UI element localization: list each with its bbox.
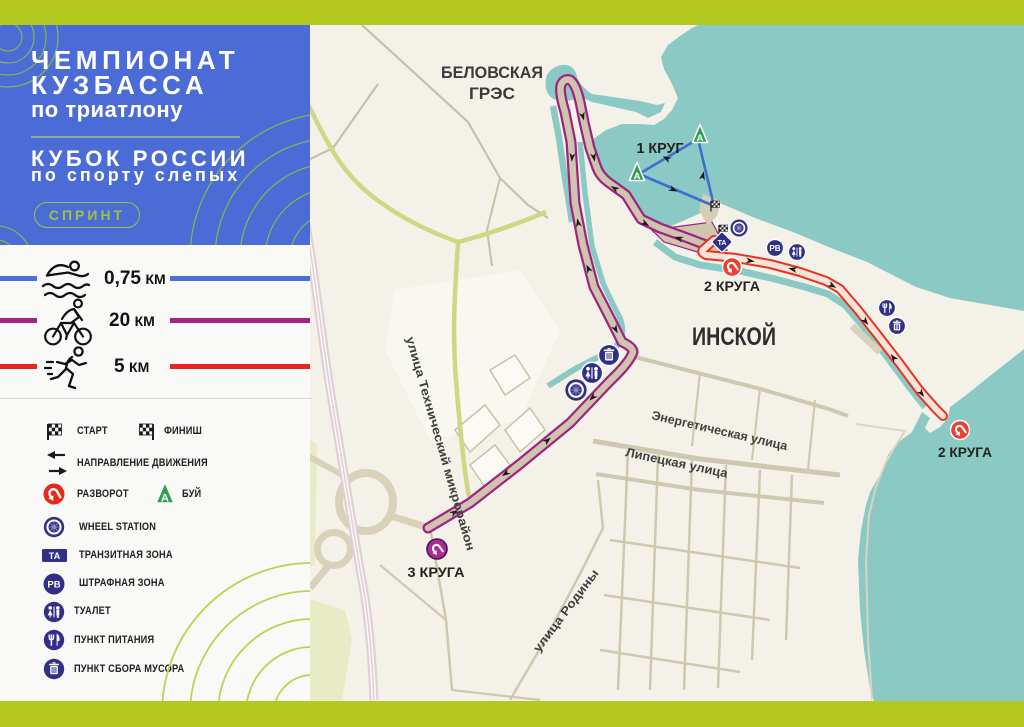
svg-text:ИНСКОЙ: ИНСКОЙ [692,321,776,351]
svg-text:1 КРУГ: 1 КРУГ [637,140,684,157]
svg-text:3 КРУГА: 3 КРУГА [408,565,465,580]
svg-text:А: А [161,493,169,505]
svg-text:2 КРУГА: 2 КРУГА [938,445,992,460]
svg-text:БЕЛОВСКАЯ: БЕЛОВСКАЯ [441,63,543,82]
svg-text:ГРЭС: ГРЭС [469,84,515,103]
svg-text:2 КРУГА: 2 КРУГА [704,279,760,294]
svg-text:ТА: ТА [718,240,727,247]
